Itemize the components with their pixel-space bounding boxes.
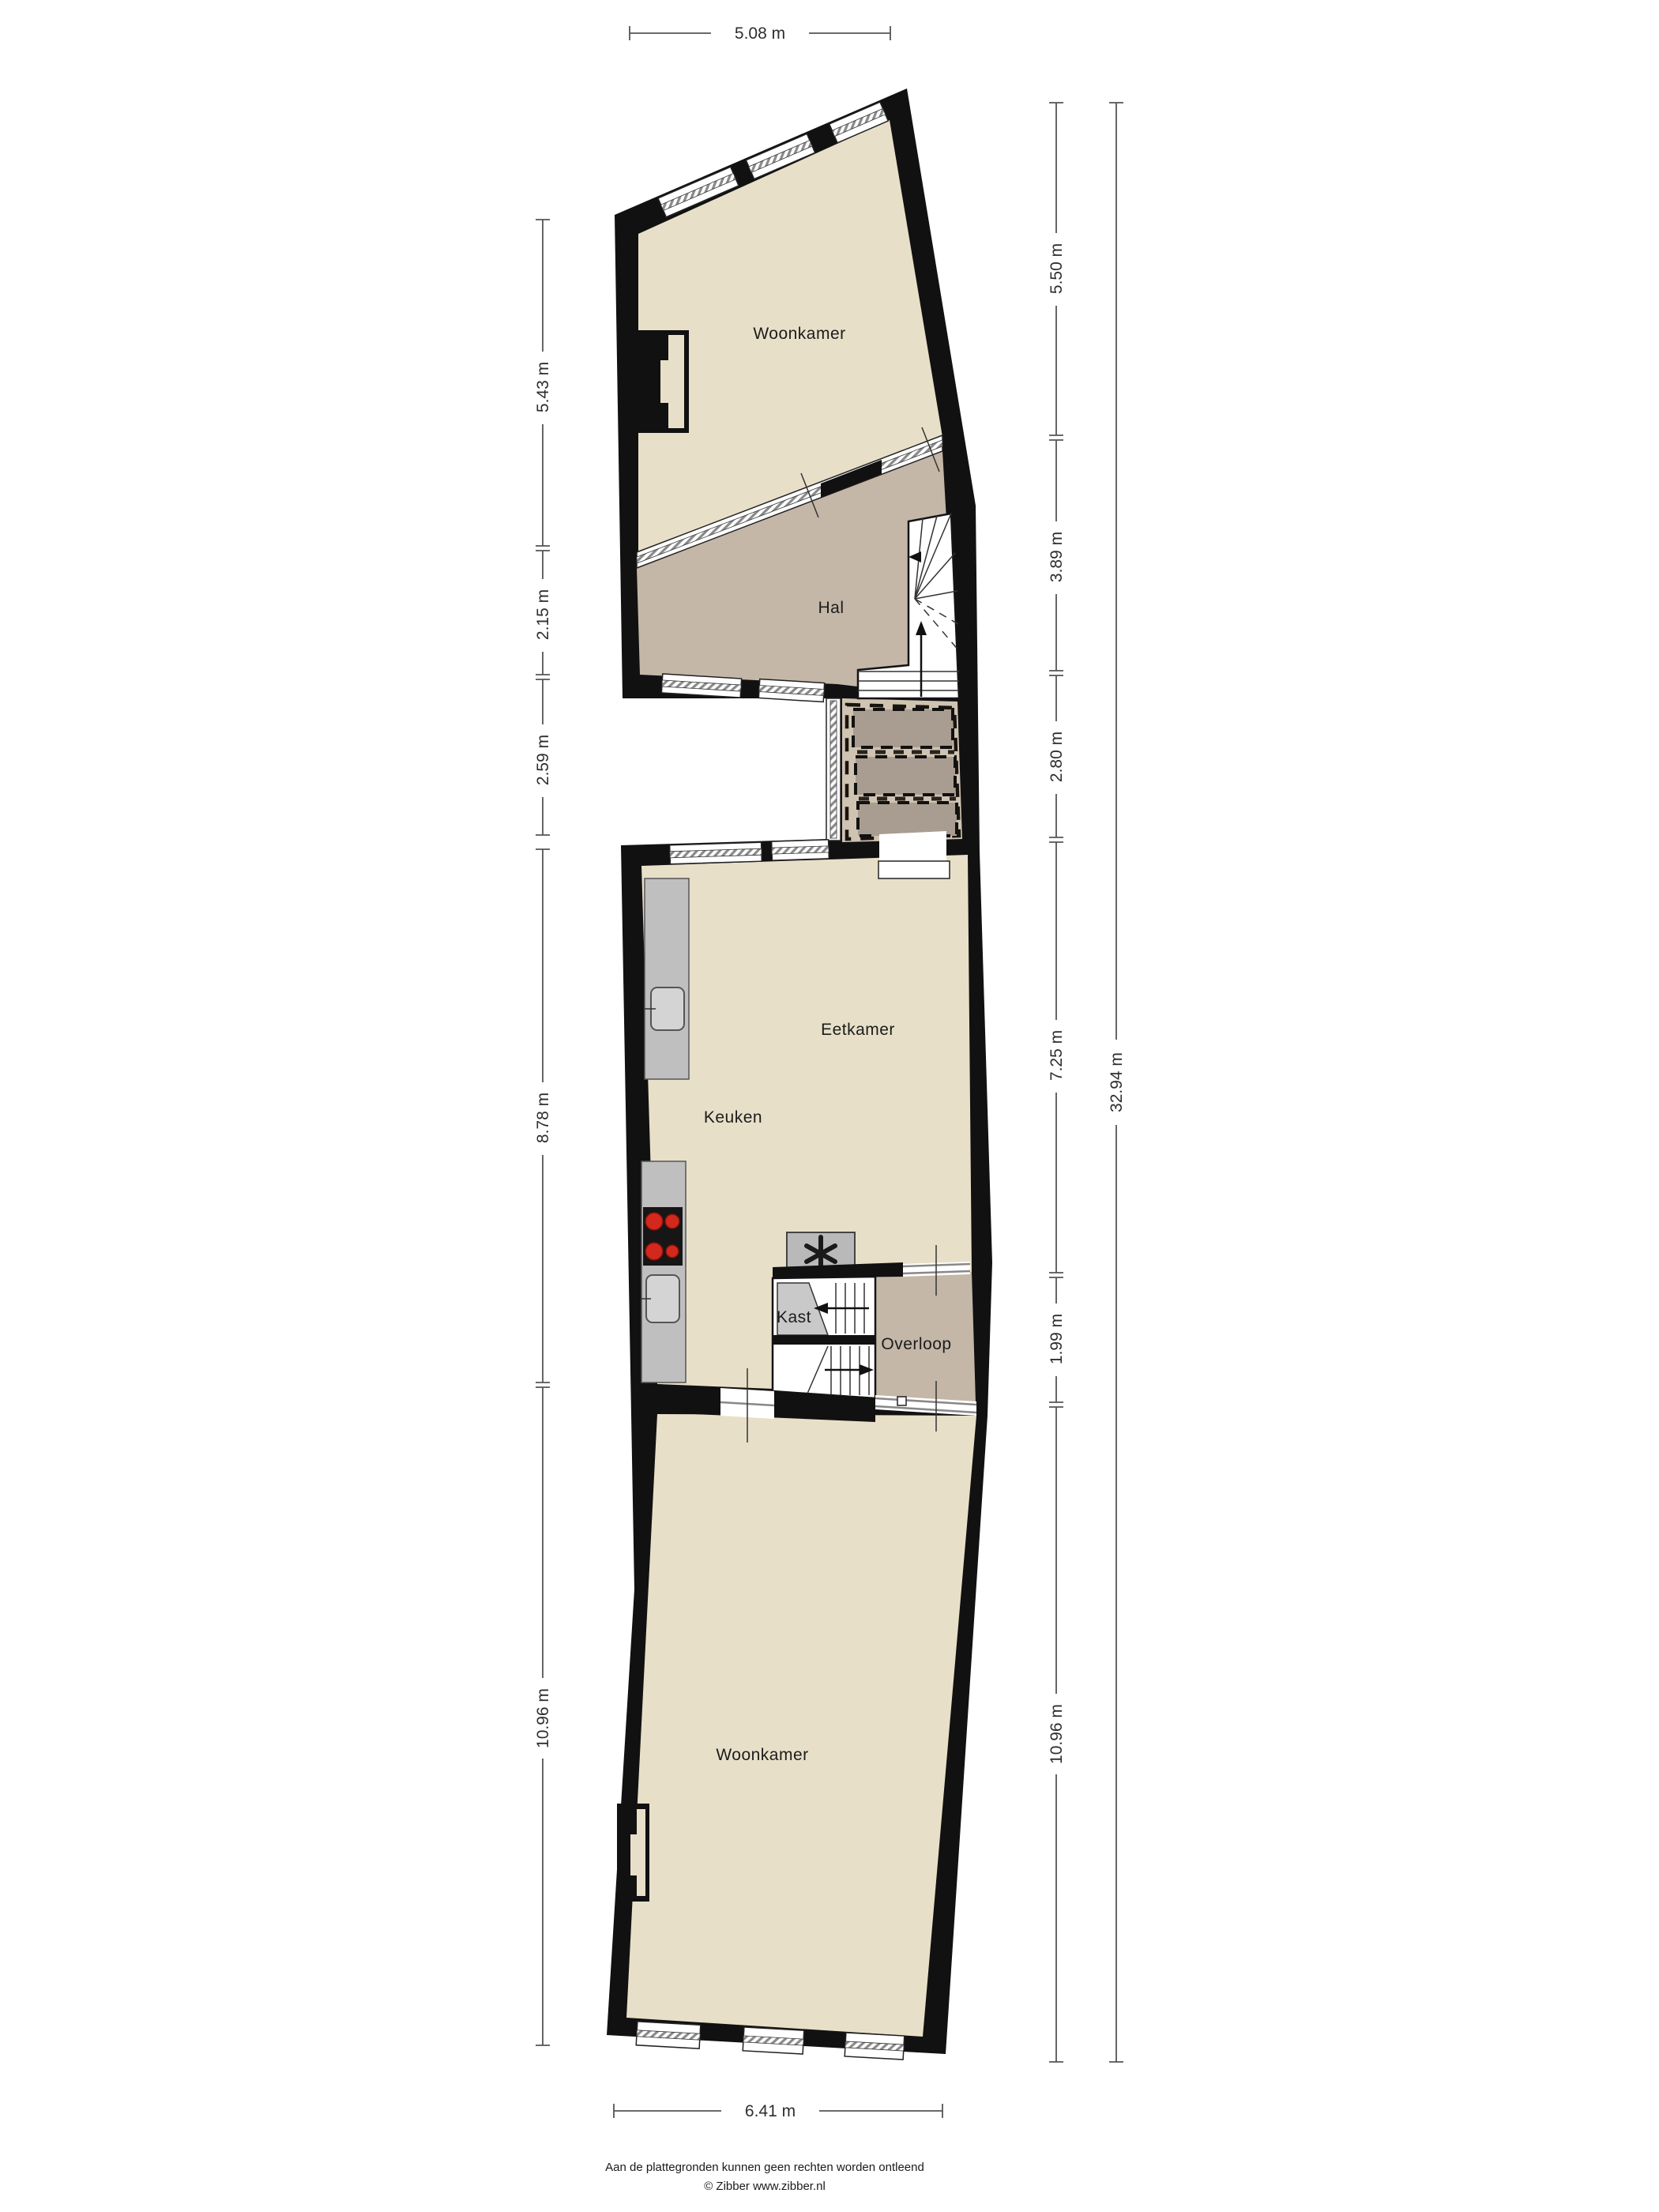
kitchen-sink	[646, 1275, 679, 1322]
room-label-eetkamer: Eetkamer	[821, 1021, 895, 1039]
dim-label-right-3: 7.25 m	[1048, 1030, 1066, 1081]
dim-label-top: 5.08 m	[735, 24, 785, 43]
room-area-woonkamer-beneden	[626, 1414, 976, 2037]
dim-left: 5.43 m 2.15 m 2.59 m 8.78 m 10.96 m	[530, 220, 555, 2045]
room-label-keuken: Keuken	[704, 1108, 762, 1127]
skylight-panel	[856, 757, 955, 795]
stove-burner	[645, 1213, 663, 1230]
dim-label-left-2: 2.59 m	[534, 735, 552, 785]
dim-label-left-0: 5.43 m	[534, 362, 552, 412]
window	[845, 2033, 905, 2060]
courtyard-glazing	[826, 698, 841, 841]
footer-credit: © Zibber www.zibber.nl	[704, 2180, 826, 2193]
window	[758, 679, 824, 702]
kitchen-counter	[645, 878, 689, 1079]
chimney-top	[626, 330, 689, 433]
window	[636, 2022, 701, 2048]
dim-label-left-3: 8.78 m	[534, 1093, 552, 1143]
stove-burner	[645, 1243, 663, 1260]
window	[743, 2027, 804, 2054]
skylight-panel	[853, 709, 953, 747]
courtyard-skylights	[826, 698, 959, 841]
courtyard-door	[878, 831, 950, 878]
stove-burner	[666, 1245, 679, 1258]
dim-label-right-5: 10.96 m	[1048, 1704, 1066, 1764]
window	[670, 842, 762, 864]
footer-disclaimer: Aan de plattegronden kunnen geen rechten…	[605, 2161, 924, 2174]
dim-bottom: 6.41 m	[614, 2098, 942, 2124]
kitchen-sink	[651, 987, 684, 1030]
dim-label-right-1: 3.89 m	[1048, 532, 1066, 582]
room-label-overloop: Overloop	[881, 1335, 951, 1353]
dim-label-right-2: 2.80 m	[1048, 732, 1066, 782]
dim-label-bottom: 6.41 m	[745, 2102, 796, 2120]
dim-top: 5.08 m	[630, 21, 890, 46]
room-label-kast: Kast	[777, 1308, 811, 1326]
window	[772, 840, 829, 860]
dim-label-right-0: 5.50 m	[1048, 243, 1066, 294]
chimney-bottom	[617, 1804, 649, 1902]
footer: Aan de plattegronden kunnen geen rechten…	[605, 2161, 924, 2193]
door-leaf	[878, 861, 950, 878]
dim-label-right-4: 1.99 m	[1048, 1314, 1066, 1364]
dim-label-left-1: 2.15 m	[534, 589, 552, 640]
stove-burner	[665, 1214, 679, 1228]
room-label-woonkamer-boven: Woonkamer	[753, 325, 845, 343]
dim-right-total: 32.94 m	[1104, 103, 1129, 2062]
skylight-panel	[858, 803, 957, 836]
dim-label-left-4: 10.96 m	[534, 1688, 552, 1748]
dim-right: 5.50 m 3.89 m 2.80 m 7.25 m 1.99 m	[1044, 103, 1069, 2062]
window	[661, 674, 741, 698]
floorplan-drawing: Woonkamer Hal Eetkamer Keuken Kast Overl…	[0, 0, 1659, 2212]
room-label-woonkamer-beneden: Woonkamer	[716, 1746, 808, 1764]
floorplan-page: Woonkamer Hal Eetkamer Keuken Kast Overl…	[0, 0, 1659, 2212]
kitchen-counter	[641, 1161, 686, 1382]
dim-label-right-total: 32.94 m	[1108, 1052, 1126, 1112]
kast-stairs-block	[773, 1277, 875, 1398]
room-label-hal: Hal	[818, 599, 844, 617]
